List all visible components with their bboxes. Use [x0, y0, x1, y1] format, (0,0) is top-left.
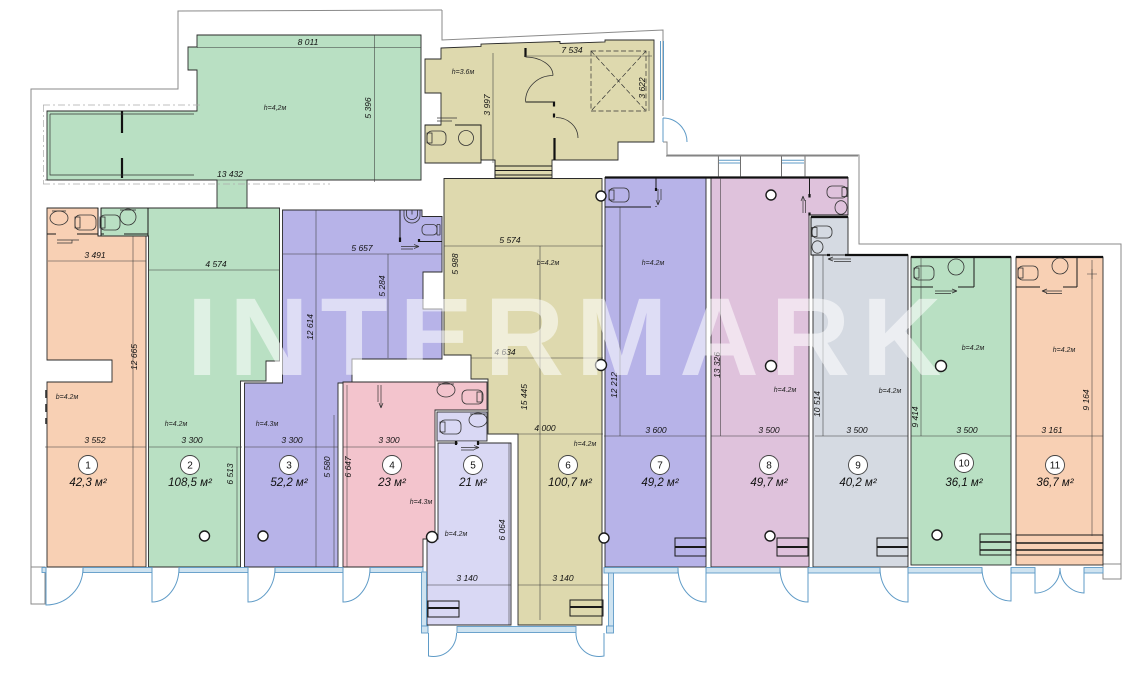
svg-text:b=4.2м: b=4.2м [56, 394, 79, 401]
svg-text:3 500: 3 500 [956, 425, 978, 435]
svg-text:49,2 м²: 49,2 м² [641, 477, 679, 489]
svg-text:3 997: 3 997 [482, 94, 492, 116]
svg-text:h=4.2м: h=4.2м [1053, 347, 1076, 354]
svg-text:6: 6 [565, 461, 571, 472]
svg-text:108,5 м²: 108,5 м² [168, 477, 213, 489]
svg-text:6 647: 6 647 [343, 456, 353, 478]
svg-text:5 657: 5 657 [351, 243, 373, 253]
svg-text:5: 5 [470, 461, 476, 472]
svg-text:13 432: 13 432 [217, 169, 243, 179]
svg-text:52,2 м²: 52,2 м² [270, 477, 308, 489]
svg-text:12 665: 12 665 [129, 344, 139, 370]
svg-text:100,7 м²: 100,7 м² [548, 477, 593, 489]
svg-text:4 000: 4 000 [534, 423, 556, 433]
svg-text:40,2 м²: 40,2 м² [839, 477, 877, 489]
svg-text:10: 10 [958, 459, 970, 470]
svg-text:INTERMARK: INTERMARK [187, 276, 953, 399]
svg-text:2: 2 [187, 461, 193, 472]
svg-text:b=4.2м: b=4.2м [445, 531, 468, 538]
svg-text:h=4.2м: h=4.2м [165, 421, 188, 428]
svg-text:3 161: 3 161 [1041, 425, 1063, 435]
svg-text:3 491: 3 491 [84, 250, 106, 260]
svg-text:3 140: 3 140 [552, 573, 574, 583]
svg-text:3 500: 3 500 [758, 425, 780, 435]
svg-text:3 552: 3 552 [84, 435, 106, 445]
svg-text:1: 1 [85, 461, 91, 472]
svg-text:7: 7 [657, 461, 663, 472]
svg-text:42,3 м²: 42,3 м² [69, 477, 107, 489]
svg-text:21 м²: 21 м² [458, 477, 488, 489]
svg-text:9: 9 [855, 461, 861, 472]
svg-text:8 011: 8 011 [298, 37, 319, 47]
svg-text:b=4.2м: b=4.2м [962, 345, 985, 352]
svg-text:5 574: 5 574 [499, 235, 521, 245]
svg-text:5 988: 5 988 [450, 253, 460, 275]
svg-text:h=4.3м: h=4.3м [256, 421, 279, 428]
svg-text:b=4.2м: b=4.2м [537, 260, 560, 267]
svg-text:3 500: 3 500 [846, 425, 868, 435]
svg-text:36,7 м²: 36,7 м² [1036, 477, 1074, 489]
svg-text:6 064: 6 064 [497, 519, 507, 541]
svg-text:9 164: 9 164 [1081, 389, 1091, 411]
svg-text:3 300: 3 300 [378, 435, 400, 445]
svg-text:4 574: 4 574 [205, 259, 227, 269]
svg-text:3: 3 [286, 461, 292, 472]
svg-text:h=3.6м: h=3.6м [452, 69, 475, 76]
svg-text:3 300: 3 300 [281, 435, 303, 445]
svg-text:36,1 м²: 36,1 м² [945, 477, 983, 489]
svg-text:49,7 м²: 49,7 м² [750, 477, 788, 489]
svg-text:5 580: 5 580 [322, 456, 332, 478]
svg-text:h=4.2м: h=4.2м [574, 441, 597, 448]
svg-text:h=4,2м: h=4,2м [264, 105, 287, 112]
svg-text:3 300: 3 300 [181, 435, 203, 445]
svg-text:9 414: 9 414 [910, 406, 920, 428]
svg-text:7 534: 7 534 [561, 45, 583, 55]
svg-text:5 396: 5 396 [363, 97, 373, 119]
svg-text:h=4.2м: h=4.2м [642, 260, 665, 267]
svg-text:6 513: 6 513 [225, 463, 235, 485]
svg-text:3 140: 3 140 [456, 573, 478, 583]
svg-text:11: 11 [1050, 461, 1061, 472]
svg-text:23 м²: 23 м² [377, 477, 407, 489]
svg-text:3 622: 3 622 [637, 77, 647, 99]
svg-text:h=4.3м: h=4.3м [410, 499, 433, 506]
svg-text:8: 8 [766, 461, 772, 472]
svg-text:4: 4 [389, 461, 395, 472]
svg-text:3 600: 3 600 [645, 425, 667, 435]
